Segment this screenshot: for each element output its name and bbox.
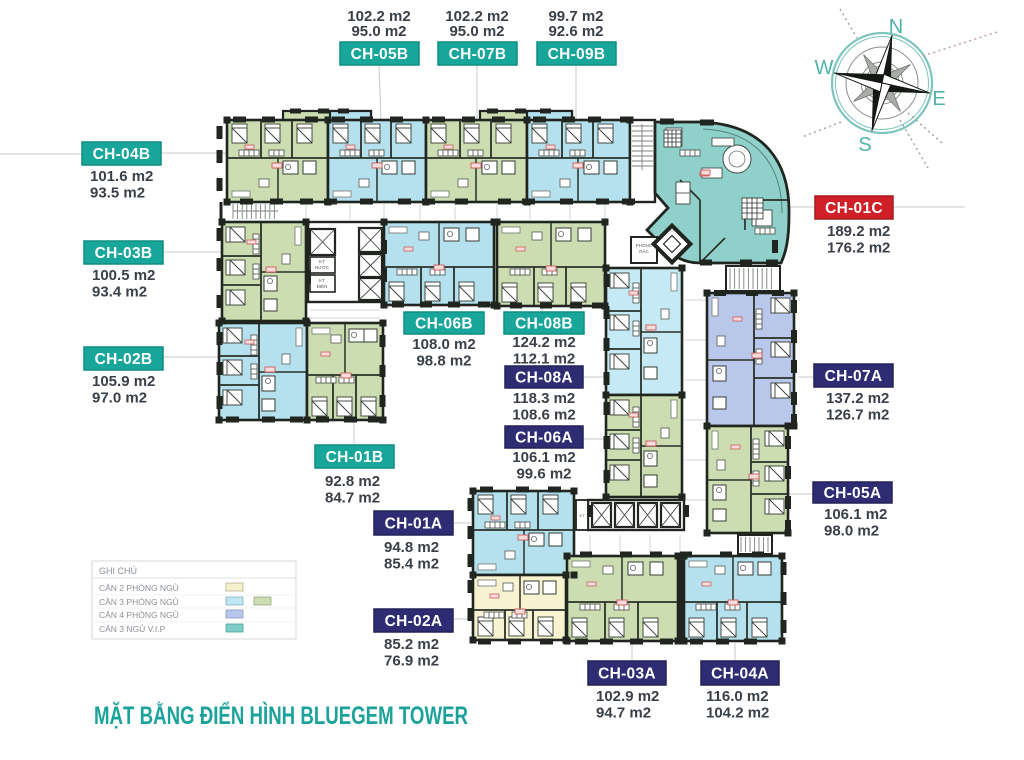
svg-text:100.5 m2: 100.5 m2 bbox=[92, 267, 155, 284]
svg-text:CH-04A: CH-04A bbox=[711, 666, 769, 683]
svg-text:CH-02A: CH-02A bbox=[385, 613, 443, 630]
svg-text:CH-03B: CH-03B bbox=[95, 245, 153, 262]
svg-text:92.8 m2: 92.8 m2 bbox=[325, 473, 380, 490]
svg-text:137.2 m2: 137.2 m2 bbox=[826, 390, 889, 407]
svg-text:CH-07B: CH-07B bbox=[449, 46, 507, 63]
svg-text:CH-05B: CH-05B bbox=[351, 46, 409, 63]
svg-text:ĐIỆN: ĐIỆN bbox=[317, 282, 328, 289]
svg-text:CH-06A: CH-06A bbox=[515, 430, 573, 447]
svg-text:116.0 m2: 116.0 m2 bbox=[706, 688, 769, 705]
svg-text:94.8 m2: 94.8 m2 bbox=[384, 539, 439, 556]
svg-text:93.5 m2: 93.5 m2 bbox=[90, 185, 145, 202]
svg-text:108.6 m2: 108.6 m2 bbox=[512, 407, 575, 424]
svg-text:RÁC: RÁC bbox=[639, 248, 649, 254]
svg-text:CĂN 3 NGỦ V.I.P: CĂN 3 NGỦ V.I.P bbox=[99, 623, 166, 634]
svg-text:CH-02B: CH-02B bbox=[95, 351, 153, 368]
svg-text:CH-01C: CH-01C bbox=[825, 200, 883, 217]
svg-text:CH-03A: CH-03A bbox=[598, 666, 656, 683]
svg-text:126.7 m2: 126.7 m2 bbox=[826, 407, 889, 424]
svg-text:CH-01B: CH-01B bbox=[326, 449, 384, 466]
svg-text:CH-06B: CH-06B bbox=[415, 316, 473, 333]
svg-text:CH-09B: CH-09B bbox=[548, 46, 606, 63]
svg-text:85.4 m2: 85.4 m2 bbox=[384, 556, 439, 573]
svg-text:PHÒNG: PHÒNG bbox=[636, 242, 653, 248]
svg-text:CĂN 2 PHÒNG NGỦ: CĂN 2 PHÒNG NGỦ bbox=[99, 582, 179, 593]
svg-text:KT: KT bbox=[579, 513, 585, 518]
svg-text:93.4 m2: 93.4 m2 bbox=[92, 284, 147, 301]
svg-text:85.2 m2: 85.2 m2 bbox=[384, 636, 439, 653]
svg-text:MẶT BẰNG ĐIỂN HÌNH BLUEGEM TOW: MẶT BẰNG ĐIỂN HÌNH BLUEGEM TOWER bbox=[94, 701, 468, 730]
svg-text:N: N bbox=[889, 16, 903, 38]
svg-text:118.3 m2: 118.3 m2 bbox=[513, 390, 576, 407]
svg-text:CH-05A: CH-05A bbox=[824, 485, 882, 502]
svg-text:106.1 m2: 106.1 m2 bbox=[824, 506, 887, 523]
svg-text:76.9 m2: 76.9 m2 bbox=[384, 653, 439, 670]
svg-text:S: S bbox=[858, 134, 871, 156]
svg-text:95.0 m2: 95.0 m2 bbox=[449, 23, 504, 40]
svg-text:92.6 m2: 92.6 m2 bbox=[548, 23, 603, 40]
svg-text:108.0 m2: 108.0 m2 bbox=[412, 336, 475, 353]
svg-text:KT: KT bbox=[319, 278, 325, 283]
svg-text:W: W bbox=[815, 57, 834, 79]
svg-text:94.7 m2: 94.7 m2 bbox=[596, 705, 651, 722]
svg-text:E: E bbox=[932, 88, 945, 110]
svg-text:112.1 m2: 112.1 m2 bbox=[513, 351, 576, 368]
svg-text:95.0 m2: 95.0 m2 bbox=[351, 23, 406, 40]
svg-text:CH-08A: CH-08A bbox=[515, 370, 573, 387]
svg-text:101.6 m2: 101.6 m2 bbox=[90, 168, 153, 185]
svg-text:97.0 m2: 97.0 m2 bbox=[92, 390, 147, 407]
svg-text:102.9 m2: 102.9 m2 bbox=[596, 688, 659, 705]
svg-text:124.2 m2: 124.2 m2 bbox=[512, 334, 575, 351]
svg-text:GHI CHÚ: GHI CHÚ bbox=[99, 566, 137, 576]
svg-text:84.7 m2: 84.7 m2 bbox=[325, 490, 380, 507]
svg-text:104.2 m2: 104.2 m2 bbox=[706, 705, 769, 722]
svg-text:CH-04B: CH-04B bbox=[93, 146, 151, 163]
svg-text:KT: KT bbox=[319, 259, 325, 264]
svg-text:189.2 m2: 189.2 m2 bbox=[827, 223, 890, 240]
svg-text:CĂN 3 PHÒNG NGỦ: CĂN 3 PHÒNG NGỦ bbox=[99, 596, 179, 607]
svg-text:CH-07A: CH-07A bbox=[825, 368, 883, 385]
svg-text:99.6 m2: 99.6 m2 bbox=[516, 466, 571, 483]
svg-text:NƯỚC: NƯỚC bbox=[315, 264, 330, 270]
svg-text:CĂN 4 PHÒNG NGỦ: CĂN 4 PHÒNG NGỦ bbox=[99, 609, 179, 620]
svg-text:176.2 m2: 176.2 m2 bbox=[827, 240, 890, 257]
svg-text:CH-01A: CH-01A bbox=[385, 516, 443, 533]
svg-text:CH-08B: CH-08B bbox=[515, 316, 573, 333]
svg-text:98.8 m2: 98.8 m2 bbox=[416, 353, 471, 370]
svg-text:98.0 m2: 98.0 m2 bbox=[824, 523, 879, 540]
svg-text:106.1 m2: 106.1 m2 bbox=[512, 449, 575, 466]
svg-text:105.9 m2: 105.9 m2 bbox=[92, 373, 155, 390]
